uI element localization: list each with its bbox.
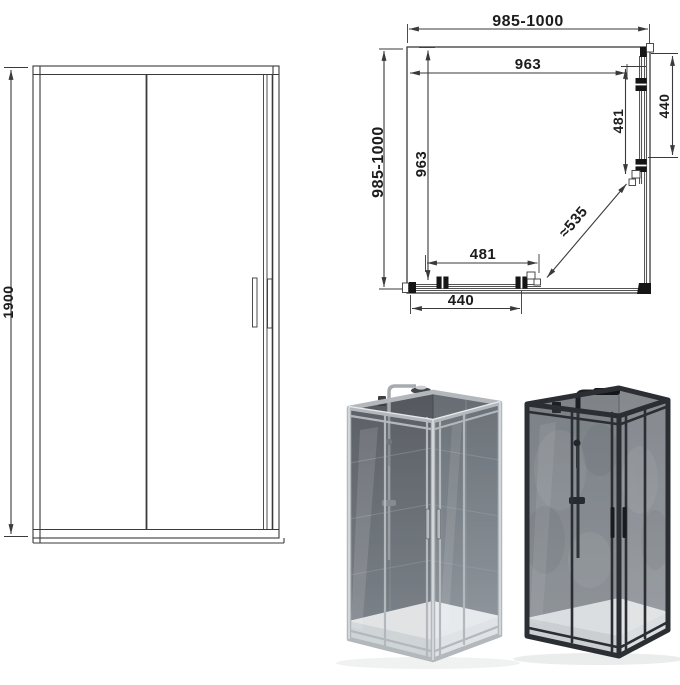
overall-width-dimension: 985-1000	[408, 13, 650, 43]
door-frame-elevation	[33, 66, 284, 543]
technical-sheet-svg: 1900	[0, 0, 680, 680]
frame-outline	[33, 66, 279, 538]
front-elevation-drawing: 1900	[0, 66, 284, 543]
diagonal-entry-label: ≈535	[556, 203, 592, 241]
front-left-corner-bracket	[409, 282, 416, 293]
product-drawing-sheet: 1900	[0, 0, 680, 685]
side-fixed-dimension: 440	[648, 54, 678, 158]
overall-depth-dimension: 985-1000	[370, 49, 403, 289]
front-glass-panel-plan	[403, 272, 652, 294]
front-door-edge-profile	[527, 272, 535, 279]
front-door-edge-cap	[534, 279, 541, 285]
height-dimension: 1900	[0, 68, 28, 537]
corner-bracket-bottom-right	[637, 283, 651, 294]
side-top-corner-bracket	[640, 47, 647, 57]
inner-depth-label: 963	[413, 151, 430, 178]
front-fixed-label: 440	[448, 292, 475, 309]
front-left-wall-profile	[403, 283, 409, 293]
side-door-label: 481	[610, 109, 626, 134]
handle-right-door	[623, 507, 627, 538]
side-door-edge-profile	[632, 171, 640, 179]
plan-view-drawing: 985-1000 985-1000 963 963 481 440	[370, 13, 678, 314]
inner-depth-dimension: 963	[413, 48, 435, 281]
inner-width-dimension: 963	[410, 56, 627, 80]
enclosure-outline	[407, 47, 650, 293]
product-render-chrome	[336, 386, 520, 669]
rain-head-cap	[416, 386, 427, 390]
handle-right-door	[437, 509, 441, 539]
front-door-label: 481	[470, 246, 497, 263]
product-render-black	[513, 388, 680, 665]
handle-left-door	[611, 507, 615, 538]
inner-width-label: 963	[515, 56, 542, 73]
handle-right	[268, 279, 273, 328]
overall-depth-label: 985-1000	[370, 126, 387, 198]
floor-shadow	[513, 653, 680, 665]
handle-left-door	[426, 509, 430, 539]
height-dimension-label: 1900	[0, 285, 16, 318]
side-door-edge-cap	[629, 179, 636, 186]
overall-width-label: 985-1000	[492, 13, 564, 30]
handle-left	[253, 278, 258, 327]
diagonal-entry-dimension: ≈535	[547, 184, 627, 278]
front-door-dimension: 481	[426, 246, 540, 273]
front-fixed-dimension: 440	[411, 291, 522, 314]
side-top-wall-profile	[647, 44, 654, 53]
side-fixed-label: 440	[656, 94, 672, 119]
